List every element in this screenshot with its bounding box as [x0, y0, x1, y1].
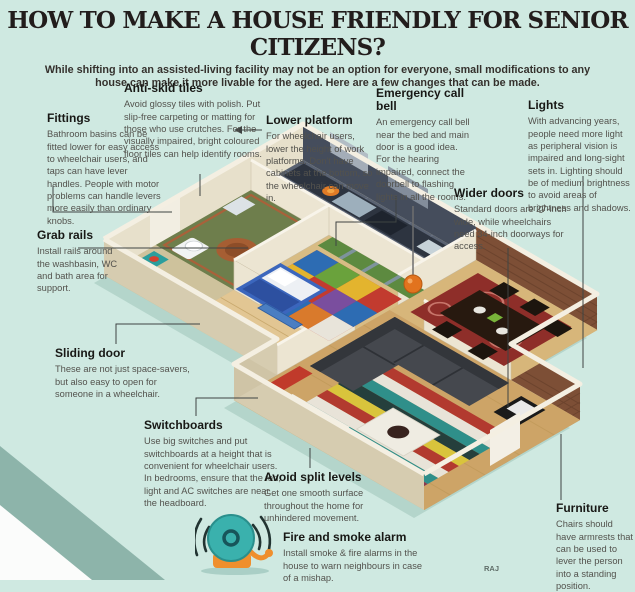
lights-heading: Lights: [528, 99, 632, 112]
white-corner-triangle: [0, 505, 92, 580]
wider-doors-body: Standard doors are 27-inch wide, while w…: [454, 203, 569, 252]
callout-lower-platform: Lower platform For wheelchair users, low…: [266, 114, 374, 204]
callout-anti-skid-tiles: Anti-skid tiles Avoid glossy tiles with …: [124, 82, 264, 160]
bell-clapper: [250, 551, 268, 558]
fire-alarm-heading: Fire and smoke alarm: [283, 531, 423, 544]
artist-credit: RAJ: [484, 564, 499, 573]
bedroom-floor: [234, 235, 425, 345]
grab-rails-body: Install rails around the washbasin, WC a…: [37, 245, 122, 294]
grab-rails-heading: Grab rails: [37, 229, 122, 242]
bell-dome: [208, 515, 254, 561]
brick-texture: [424, 236, 597, 501]
dining-table: [440, 290, 546, 351]
bell-base: [213, 553, 251, 568]
dining-floor: [390, 260, 598, 380]
dining-chair: [520, 299, 550, 317]
dining-chair: [489, 282, 519, 300]
dining-rug: [410, 273, 571, 366]
callout-sliding-door: Sliding door These are not just space-sa…: [55, 347, 190, 400]
wardrobe: [318, 237, 425, 299]
page-title: HOW TO MAKE A HOUSE FRIENDLY FOR SENIOR …: [0, 7, 635, 61]
toilet: [171, 237, 211, 260]
lower-platform-body: For wheelchair users, lower the height o…: [266, 130, 374, 204]
red-vase: [147, 255, 161, 263]
bathroom-border: [164, 195, 320, 285]
patchwork-rug: [244, 250, 402, 341]
dining-chair: [468, 343, 498, 361]
washbasin: [222, 197, 255, 216]
lower-platform-heading: Lower platform: [266, 114, 374, 127]
header: HOW TO MAKE A HOUSE FRIENDLY FOR SENIOR …: [0, 0, 635, 91]
sofa: [310, 317, 509, 432]
callout-fire-and-smoke-alarm: Fire and smoke alarm Install smoke & fir…: [283, 531, 423, 584]
sliding-door-heading: Sliding door: [55, 347, 190, 360]
callout-grab-rails: Grab rails Install rails around the wash…: [37, 229, 122, 295]
avoid-split-levels-heading: Avoid split levels: [264, 471, 379, 484]
callout-switchboards: Switchboards Use big switches and put sw…: [144, 419, 281, 509]
fire-alarm-body: Install smoke & fire alarms in the house…: [283, 547, 423, 584]
main-door: [490, 412, 520, 466]
furniture-body: Chairs should have armrests that can be …: [556, 518, 634, 592]
bed: [235, 263, 327, 316]
armchair: [494, 396, 546, 426]
kitchen-sink: [416, 240, 447, 258]
callout-wider-doors: Wider doors Standard doors are 27-inch w…: [454, 187, 569, 253]
switchboards-body: Use big switches and put switchboards at…: [144, 435, 281, 509]
table-plant: [487, 313, 503, 323]
dining-chair: [542, 320, 572, 338]
wider-doors-heading: Wider doors: [454, 187, 569, 200]
emergency-call-bell-heading: Emergency call bell: [376, 87, 471, 113]
stove: [364, 211, 407, 236]
teal-corner-triangle: [0, 446, 165, 580]
bathroom-floor: [156, 190, 329, 290]
callout-avoid-split-levels: Avoid split levels Get one smooth surfac…: [264, 471, 379, 524]
anti-skid-body: Avoid glossy tiles with polish. Put slip…: [124, 98, 264, 160]
bath-rug: [208, 233, 267, 267]
avoid-split-levels-body: Get one smooth surface throughout the ho…: [264, 487, 379, 524]
anti-skid-heading: Anti-skid tiles: [124, 82, 264, 95]
sound-waves: [195, 517, 270, 555]
red-sideboard: [255, 366, 313, 400]
furniture-heading: Furniture: [556, 502, 634, 515]
sliding-door-body: These are not just space-savers, but als…: [55, 363, 190, 400]
dining-chair: [432, 321, 462, 339]
pendant-lamp: [404, 206, 422, 293]
entry-shelf: [119, 251, 168, 280]
entry-floor: [104, 245, 234, 320]
bowl: [383, 423, 414, 441]
switchboards-heading: Switchboards: [144, 419, 281, 432]
sliding-door-panel: [258, 304, 302, 330]
callout-furniture: Furniture Chairs should have armrests th…: [556, 502, 634, 592]
infographic-page: { "header": { "title": "HOW TO MAKE A HO…: [0, 0, 635, 580]
hall-floor: [182, 290, 329, 375]
coffee-table: [357, 408, 440, 456]
pillow: [267, 269, 297, 287]
